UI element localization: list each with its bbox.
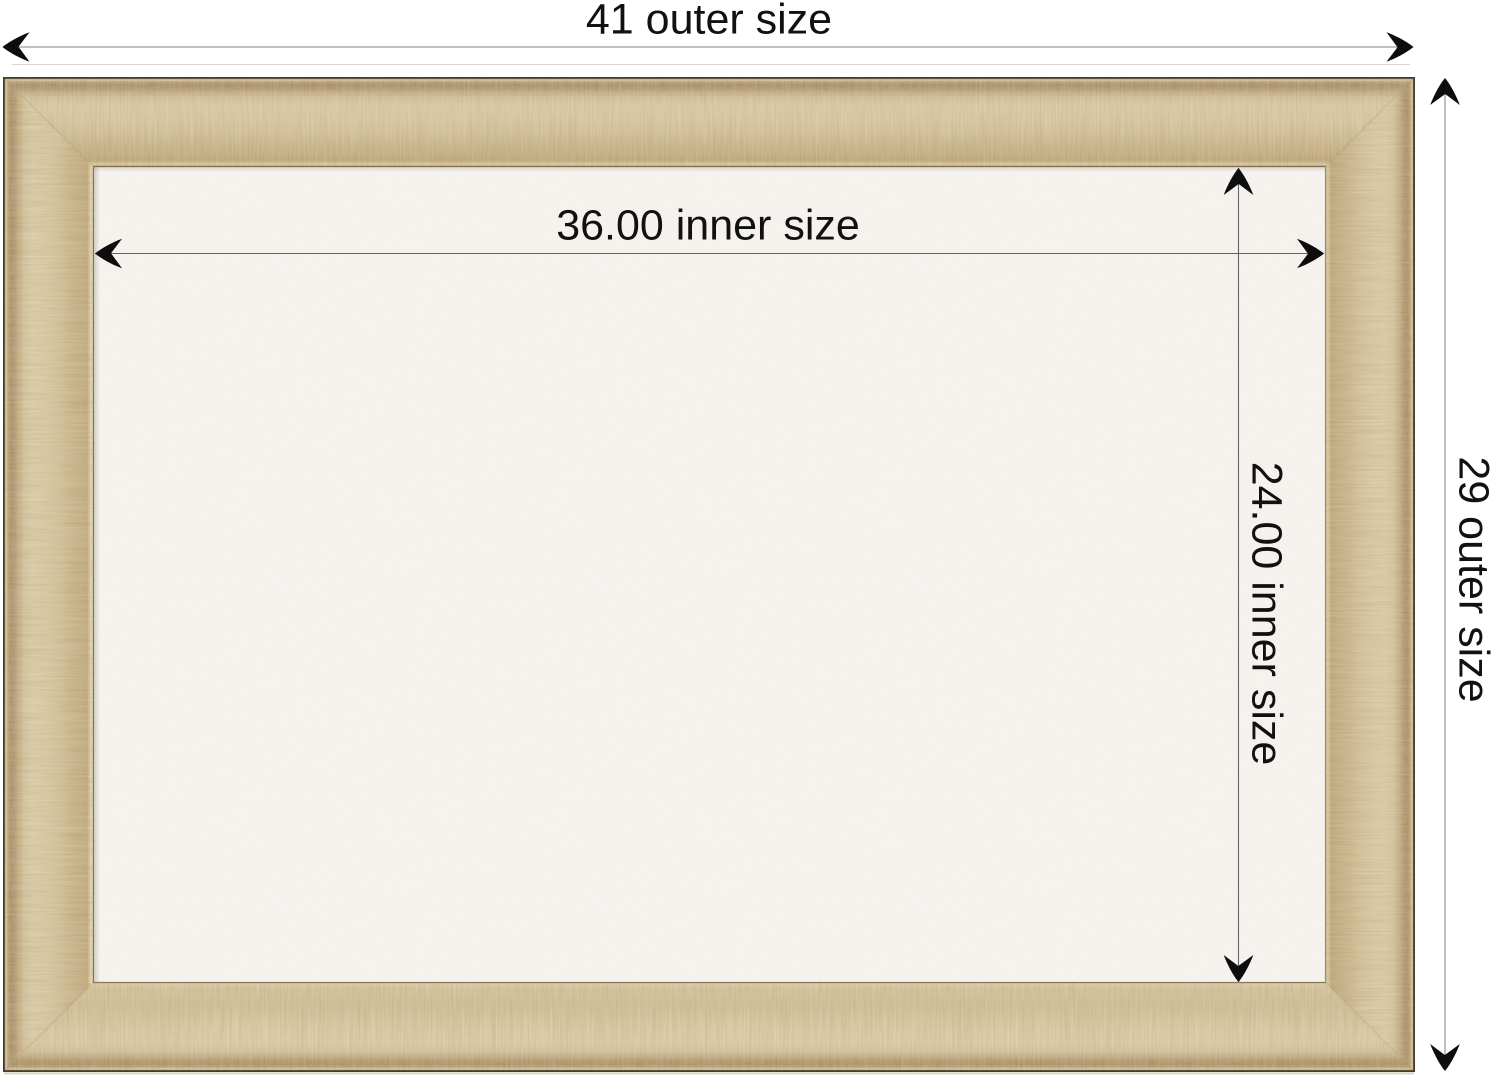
svg-text:24.00 inner size: 24.00 inner size [1243,462,1291,766]
svg-text:41 outer size: 41 outer size [586,0,832,44]
svg-text:36.00 inner size: 36.00 inner size [556,202,860,250]
svg-text:29 outer size: 29 outer size [1450,456,1498,702]
